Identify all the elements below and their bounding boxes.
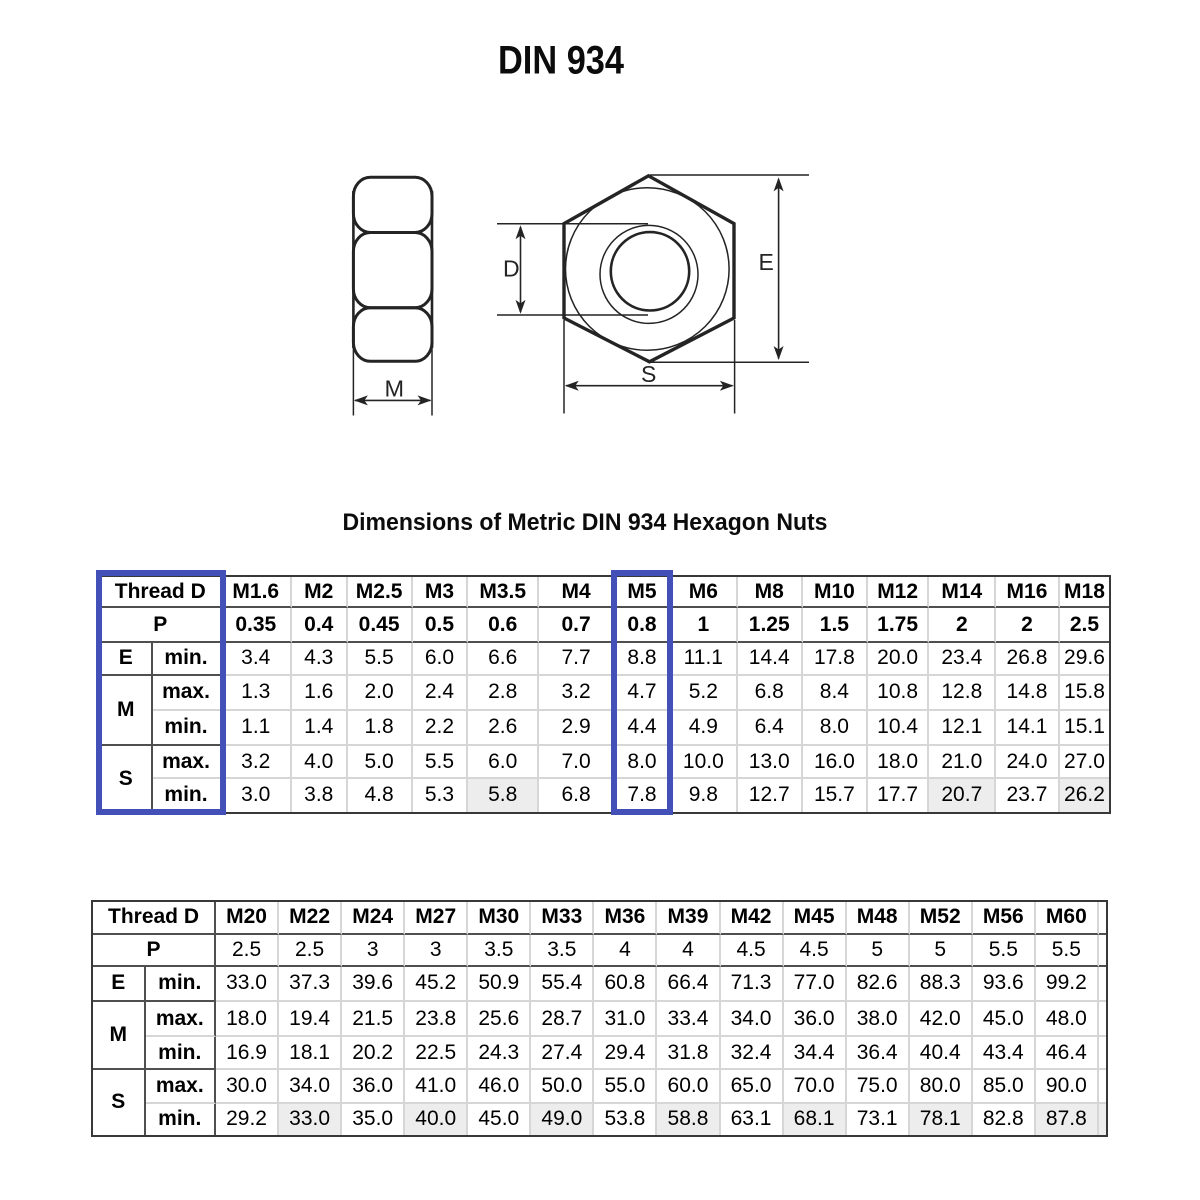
svg-text:M: M: [385, 376, 405, 402]
svg-text:E: E: [759, 249, 774, 275]
svg-text:D: D: [503, 256, 520, 282]
svg-text:S: S: [641, 361, 656, 387]
svg-text:Dimensions of Metric DIN 934 H: Dimensions of Metric DIN 934 Hexagon Nut…: [343, 509, 828, 536]
